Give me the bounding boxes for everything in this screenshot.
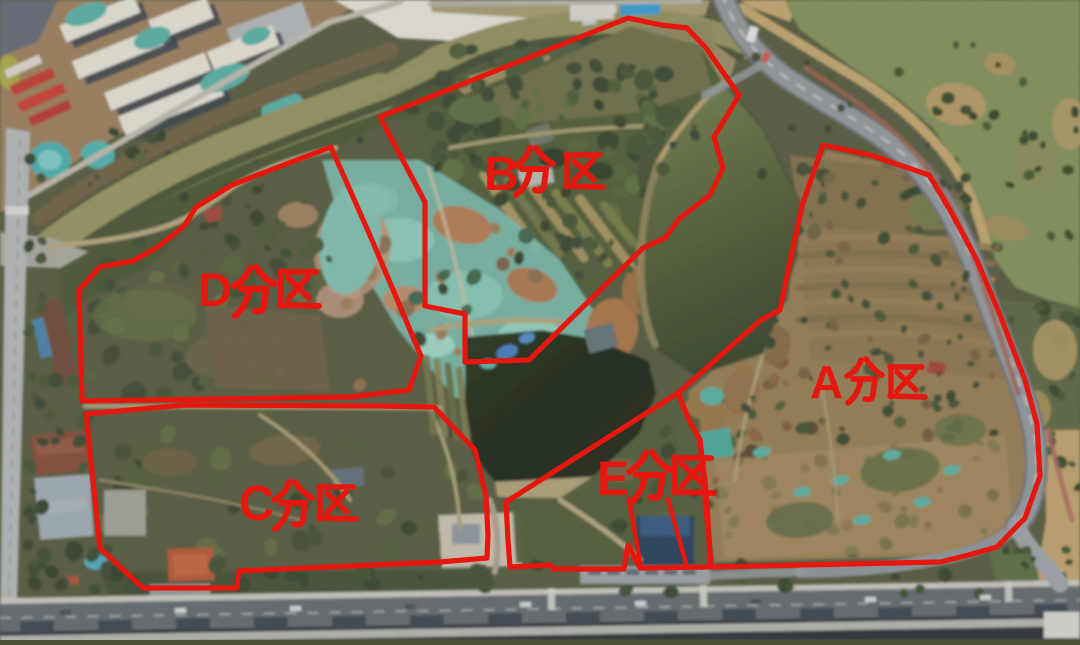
- svg-text:A: A: [810, 356, 843, 408]
- svg-text:C: C: [239, 477, 274, 531]
- svg-text:D: D: [198, 263, 232, 316]
- svg-text:B: B: [484, 148, 519, 201]
- svg-text:E: E: [597, 453, 629, 506]
